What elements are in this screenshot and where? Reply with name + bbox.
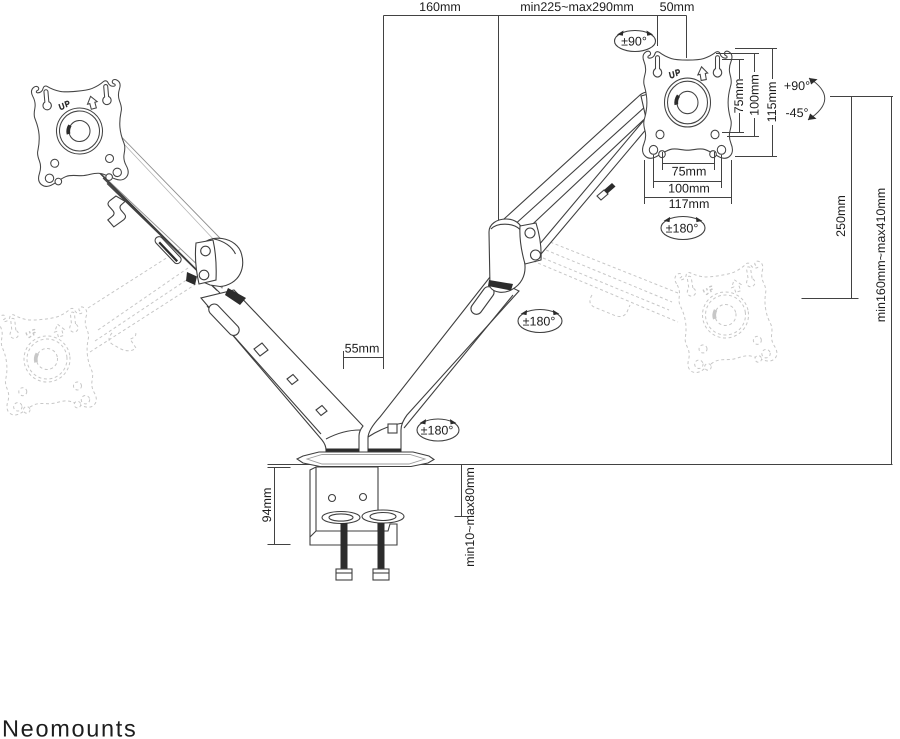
svg-text:250mm: 250mm bbox=[834, 195, 848, 237]
svg-text:Neomounts: Neomounts bbox=[2, 716, 137, 739]
svg-text:117mm: 117mm bbox=[669, 197, 710, 211]
svg-text:min225~max290mm: min225~max290mm bbox=[520, 0, 634, 14]
svg-text:100mm: 100mm bbox=[668, 182, 710, 196]
svg-text:75mm: 75mm bbox=[672, 165, 707, 179]
svg-text:±90°: ±90° bbox=[621, 35, 647, 49]
svg-text:94mm: 94mm bbox=[260, 488, 274, 523]
svg-text:75mm: 75mm bbox=[732, 79, 746, 114]
svg-text:±180°: ±180° bbox=[421, 424, 454, 438]
svg-text:+90°: +90° bbox=[784, 79, 810, 93]
svg-text:100mm: 100mm bbox=[748, 74, 762, 116]
svg-text:55mm: 55mm bbox=[345, 342, 380, 356]
svg-text:-45°: -45° bbox=[785, 106, 808, 120]
svg-text:160mm: 160mm bbox=[419, 0, 461, 14]
svg-text:115mm: 115mm bbox=[765, 82, 779, 123]
svg-text:±180°: ±180° bbox=[523, 315, 556, 329]
svg-text:50mm: 50mm bbox=[660, 0, 695, 14]
svg-text:min160mm~max410mm: min160mm~max410mm bbox=[874, 188, 888, 322]
svg-text:min10~max80mm: min10~max80mm bbox=[463, 467, 477, 567]
svg-text:±180°: ±180° bbox=[666, 222, 699, 236]
